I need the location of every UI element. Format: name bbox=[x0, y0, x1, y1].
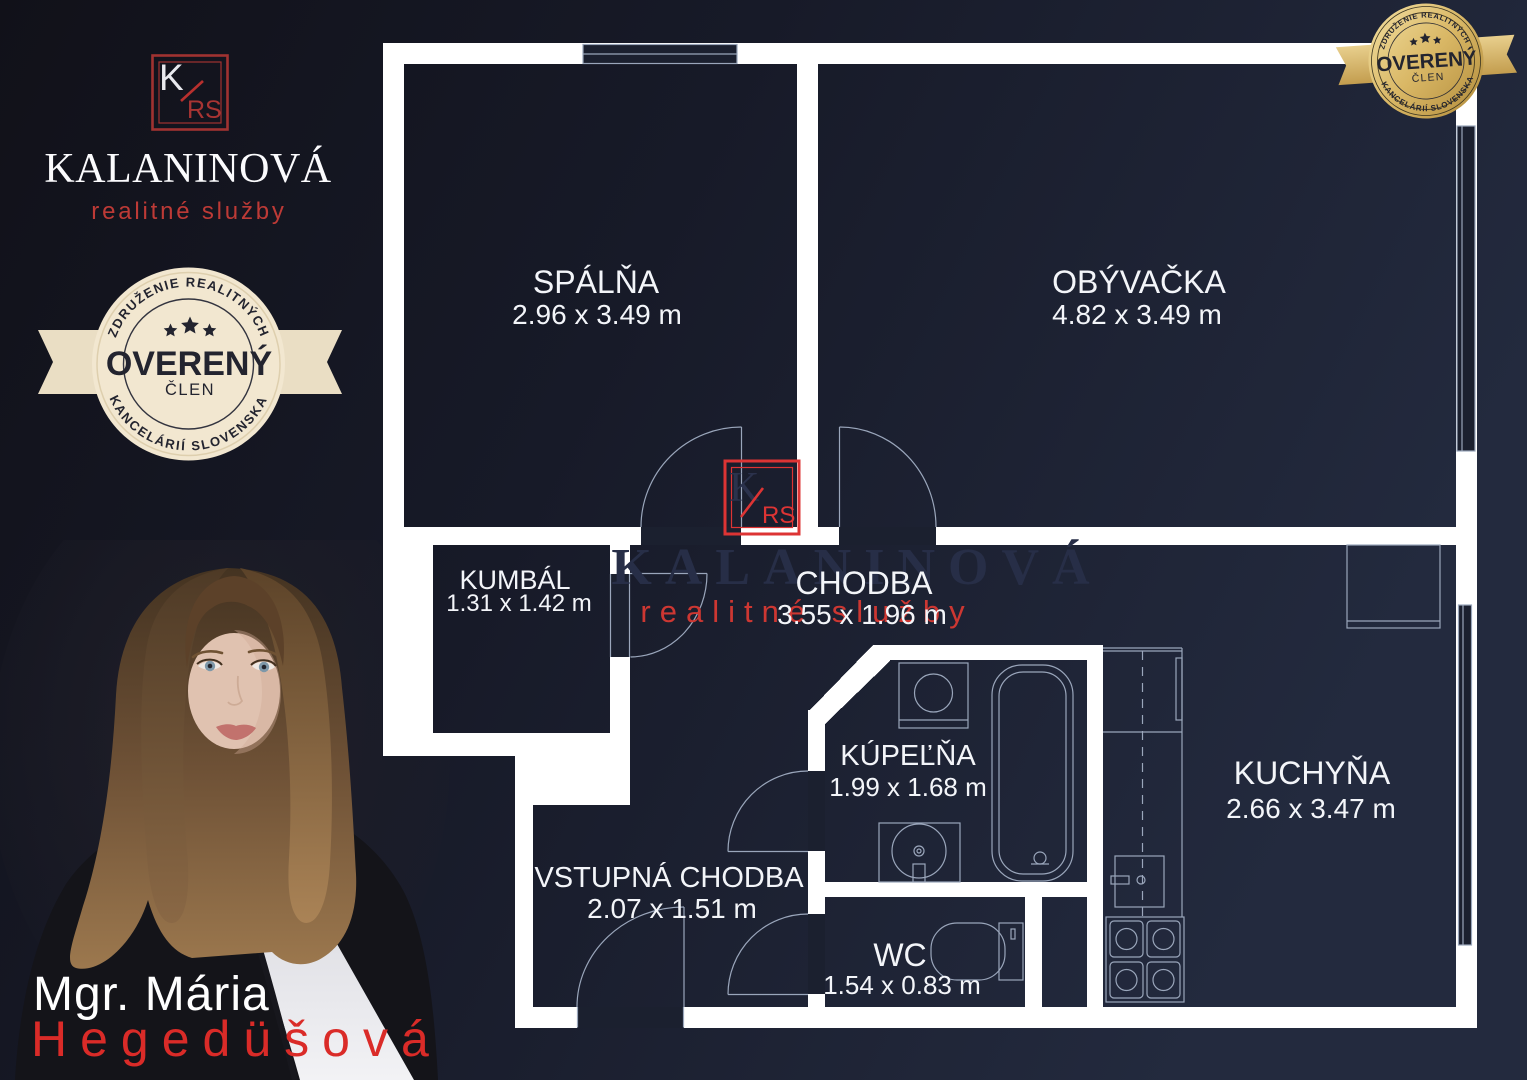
svg-text:VSTUPNÁ CHODBA: VSTUPNÁ CHODBA bbox=[534, 861, 804, 894]
svg-text:3.55 x 1.96 m: 3.55 x 1.96 m bbox=[777, 599, 947, 630]
svg-text:K: K bbox=[729, 465, 759, 511]
svg-text:Hegedüšová: Hegedüšová bbox=[31, 1011, 442, 1067]
svg-text:OVERENÝ: OVERENÝ bbox=[106, 345, 273, 383]
svg-text:2.66 x 3.47 m: 2.66 x 3.47 m bbox=[1226, 793, 1396, 824]
svg-text:K: K bbox=[159, 57, 184, 98]
svg-text:realitné služby: realitné služby bbox=[91, 198, 286, 225]
svg-text:1.99 x 1.68 m: 1.99 x 1.68 m bbox=[829, 772, 987, 802]
svg-text:OBÝVAČKA: OBÝVAČKA bbox=[1052, 264, 1226, 300]
svg-text:1.31 x 1.42 m: 1.31 x 1.42 m bbox=[446, 590, 591, 617]
svg-text:KÚPEĽŇA: KÚPEĽŇA bbox=[840, 739, 976, 772]
svg-text:RS: RS bbox=[187, 96, 222, 124]
svg-text:CHODBA: CHODBA bbox=[796, 565, 934, 601]
svg-text:2.96 x 3.49 m: 2.96 x 3.49 m bbox=[512, 299, 682, 330]
svg-text:ČLEN: ČLEN bbox=[165, 380, 215, 399]
svg-text:1.54 x 0.83 m: 1.54 x 0.83 m bbox=[823, 970, 981, 1000]
svg-text:WC: WC bbox=[873, 937, 926, 973]
svg-text:ČLEN: ČLEN bbox=[1411, 70, 1445, 85]
svg-text:KALANINOVÁ: KALANINOVÁ bbox=[44, 145, 331, 192]
svg-text:KUCHYŇA: KUCHYŇA bbox=[1234, 755, 1391, 791]
svg-text:2.07 x 1.51 m: 2.07 x 1.51 m bbox=[587, 893, 757, 924]
svg-text:SPÁLŇA: SPÁLŇA bbox=[533, 264, 660, 300]
svg-text:4.82 x 3.49 m: 4.82 x 3.49 m bbox=[1052, 299, 1222, 330]
svg-text:RS: RS bbox=[762, 502, 795, 529]
